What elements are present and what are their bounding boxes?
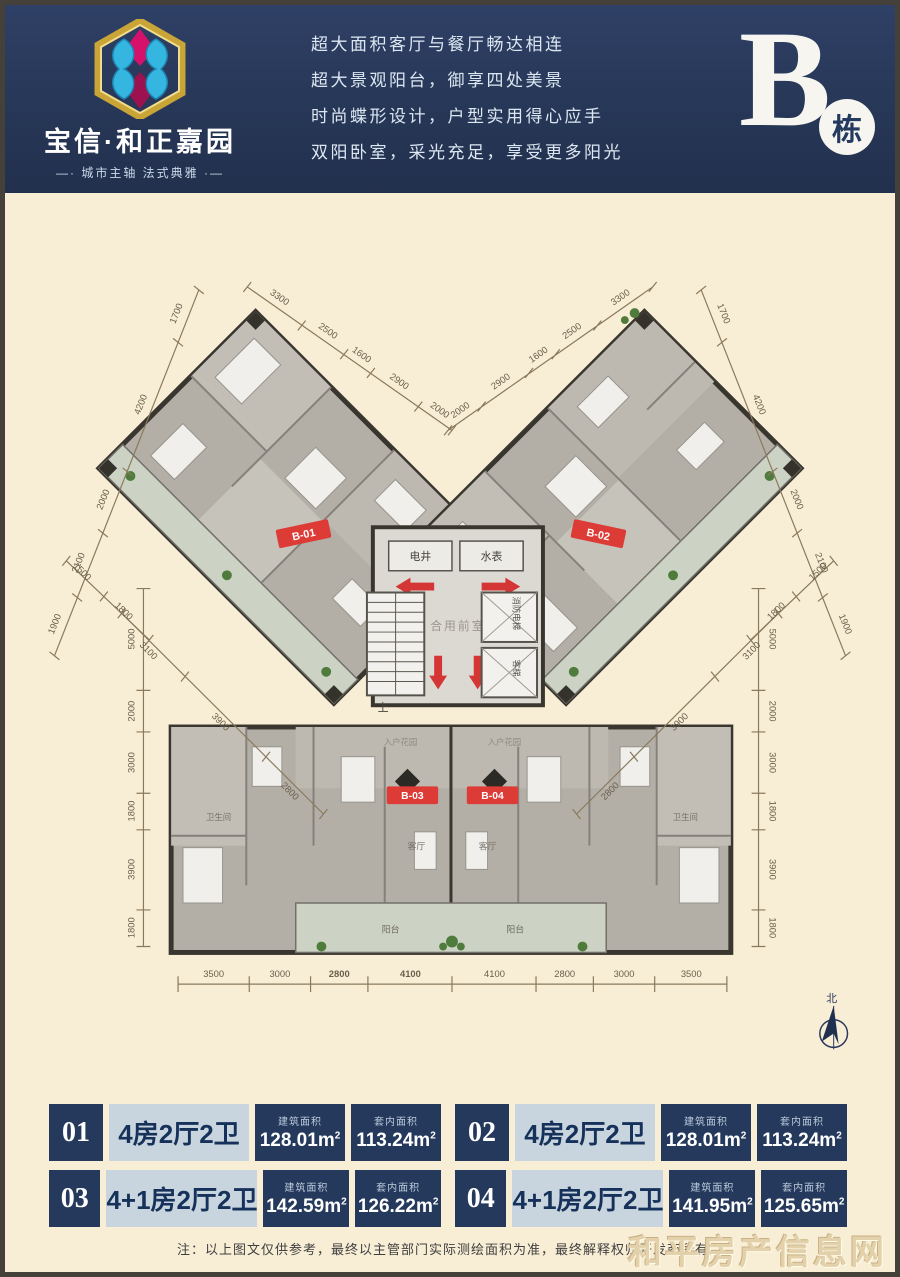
unit-column-right: 02 4房2厅2卫 建筑面积 128.01m2 套内面积 113.24m2 04… bbox=[455, 1104, 847, 1227]
svg-text:1700: 1700 bbox=[715, 302, 733, 325]
building-letter: B bbox=[739, 7, 831, 152]
svg-text:3900: 3900 bbox=[126, 859, 137, 880]
logo-wing-right bbox=[146, 39, 167, 99]
shared-lobby-label: 合用前室 bbox=[430, 619, 485, 633]
living-room-label: 客厅 bbox=[479, 841, 497, 852]
lower-block: 入户花园 入户花园 客厅 客厅 阳台 阳台 卫生间 卫生间 bbox=[171, 727, 731, 952]
built-area-cell: 建筑面积 128.01m2 bbox=[661, 1104, 751, 1161]
brand-logo-icon bbox=[90, 19, 190, 119]
svg-text:2000: 2000 bbox=[767, 701, 778, 722]
slogan-line: 时尚蝶形设计，户型实用得心应手 bbox=[311, 99, 690, 135]
svg-text:2800: 2800 bbox=[329, 968, 350, 979]
svg-text:1800: 1800 bbox=[765, 600, 788, 622]
svg-text:3000: 3000 bbox=[614, 968, 635, 979]
unit-type: 4+1房2厅2卫 bbox=[106, 1170, 257, 1227]
svg-text:4100: 4100 bbox=[400, 968, 421, 979]
brand-name: 宝信·和正嘉园 bbox=[5, 120, 275, 159]
svg-text:4100: 4100 bbox=[484, 968, 505, 979]
fire-elevator-label: 消防电梯 bbox=[511, 596, 521, 630]
svg-text:1800: 1800 bbox=[767, 917, 778, 938]
inner-area-cell: 套内面积 113.24m2 bbox=[757, 1104, 847, 1161]
entry-garden-label: 入户花园 bbox=[488, 737, 522, 747]
unit-info-tables: 01 4房2厅2卫 建筑面积 128.01m2 套内面积 113.24m2 03… bbox=[5, 1088, 895, 1227]
built-area-label: 建筑面积 bbox=[284, 1179, 328, 1194]
inner-area-value: 113.24m2 bbox=[762, 1130, 842, 1152]
unit-number: 02 bbox=[455, 1104, 509, 1161]
built-area-value: 142.59m2 bbox=[266, 1196, 347, 1218]
inner-area-cell: 套内面积 113.24m2 bbox=[351, 1104, 441, 1161]
svg-text:3500: 3500 bbox=[681, 968, 702, 979]
inner-area-value: 125.65m2 bbox=[764, 1196, 845, 1218]
svg-text:3000: 3000 bbox=[767, 752, 778, 773]
core: 电井 水表 合用前室 上 消防电梯 bbox=[367, 527, 543, 714]
slogan-list: 超大面积客厅与餐厅畅达相连 超大景观阳台，御享四处美景 时尚蝶形设计，户型实用得… bbox=[275, 27, 690, 171]
inner-area-label: 套内面积 bbox=[374, 1113, 418, 1128]
svg-text:1800: 1800 bbox=[113, 600, 136, 622]
unit-type: 4房2厅2卫 bbox=[515, 1104, 655, 1161]
svg-text:4200: 4200 bbox=[131, 393, 149, 416]
built-area-label: 建筑面积 bbox=[278, 1113, 322, 1128]
built-area-cell: 建筑面积 142.59m2 bbox=[263, 1170, 349, 1227]
svg-text:3100: 3100 bbox=[138, 639, 161, 662]
building-badge: 栋 bbox=[819, 99, 875, 155]
slogan-line: 超大面积客厅与餐厅畅达相连 bbox=[311, 27, 690, 63]
svg-text:1900: 1900 bbox=[45, 612, 63, 635]
unit-number: 01 bbox=[49, 1104, 103, 1161]
entry-garden-label: 入户花园 bbox=[384, 737, 418, 747]
brand-tagline: —· 城市主轴 法式典雅 ·— bbox=[5, 164, 275, 181]
stairs-up-label: 上 bbox=[378, 701, 389, 714]
footer: 01 4房2厅2卫 建筑面积 128.01m2 套内面积 113.24m2 03… bbox=[5, 1088, 895, 1272]
water-meter-label: 水表 bbox=[481, 549, 503, 563]
svg-text:3000: 3000 bbox=[269, 968, 290, 979]
inner-area-cell: 套内面积 126.22m2 bbox=[355, 1170, 441, 1227]
unit-row-04: 04 4+1房2厅2卫 建筑面积 141.95m2 套内面积 125.65m2 bbox=[455, 1170, 847, 1227]
bathroom-label: 卫生间 bbox=[673, 812, 698, 822]
unit-type: 4+1房2厅2卫 bbox=[512, 1170, 663, 1227]
compass-icon: 北 bbox=[820, 992, 848, 1049]
built-area-label: 建筑面积 bbox=[690, 1179, 734, 1194]
brand-block: 宝信·和正嘉园 —· 城市主轴 法式典雅 ·— bbox=[5, 17, 275, 181]
living-room-label: 客厅 bbox=[407, 841, 425, 852]
svg-text:3000: 3000 bbox=[126, 752, 137, 773]
inner-area-value: 126.22m2 bbox=[358, 1196, 439, 1218]
unit-type: 4房2厅2卫 bbox=[109, 1104, 249, 1161]
floor-plan-area: 电井 水表 合用前室 上 消防电梯 bbox=[5, 193, 895, 1088]
unit-tag-b03: B-03 bbox=[387, 786, 438, 804]
logo-wing-left bbox=[113, 39, 134, 99]
unit-number: 03 bbox=[49, 1170, 100, 1227]
floor-plan-svg: 电井 水表 合用前室 上 消防电梯 bbox=[5, 193, 895, 1078]
balcony-label: 阳台 bbox=[506, 924, 524, 935]
header: 宝信·和正嘉园 —· 城市主轴 法式典雅 ·— 超大面积客厅与餐厅畅达相连 超大… bbox=[5, 5, 895, 193]
inner-area-label: 套内面积 bbox=[376, 1179, 420, 1194]
built-area-label: 建筑面积 bbox=[684, 1113, 728, 1128]
unit-number: 04 bbox=[455, 1170, 506, 1227]
svg-text:2000: 2000 bbox=[126, 701, 137, 722]
svg-text:3900: 3900 bbox=[767, 859, 778, 880]
building-block: B 栋 bbox=[690, 5, 895, 193]
built-area-value: 128.01m2 bbox=[666, 1130, 747, 1152]
svg-text:1800: 1800 bbox=[126, 917, 137, 938]
svg-text:2000: 2000 bbox=[788, 488, 806, 511]
unit-row-02: 02 4房2厅2卫 建筑面积 128.01m2 套内面积 113.24m2 bbox=[455, 1104, 847, 1161]
svg-text:1900: 1900 bbox=[837, 612, 855, 635]
inner-area-value: 113.24m2 bbox=[356, 1130, 436, 1152]
svg-text:3500: 3500 bbox=[203, 968, 224, 979]
compass-north-label: 北 bbox=[826, 992, 837, 1005]
bathroom-label: 卫生间 bbox=[206, 812, 231, 822]
electric-shaft-label: 电井 bbox=[409, 549, 431, 563]
built-area-value: 128.01m2 bbox=[260, 1130, 341, 1152]
unit-row-03: 03 4+1房2厅2卫 建筑面积 142.59m2 套内面积 126.22m2 bbox=[49, 1170, 441, 1227]
svg-text:1800: 1800 bbox=[767, 801, 778, 822]
svg-text:B-04: B-04 bbox=[481, 791, 504, 802]
inner-area-cell: 套内面积 125.65m2 bbox=[761, 1170, 847, 1227]
built-area-cell: 建筑面积 128.01m2 bbox=[255, 1104, 345, 1161]
unit-column-left: 01 4房2厅2卫 建筑面积 128.01m2 套内面积 113.24m2 03… bbox=[49, 1104, 441, 1227]
watermark: 和平房产信息网 bbox=[628, 1225, 887, 1274]
built-area-value: 141.95m2 bbox=[672, 1196, 753, 1218]
unit-tag-b04: B-04 bbox=[467, 786, 518, 804]
svg-text:B-03: B-03 bbox=[401, 791, 424, 802]
inner-area-label: 套内面积 bbox=[782, 1179, 826, 1194]
slogan-line: 超大景观阳台，御享四处美景 bbox=[311, 63, 690, 99]
svg-text:2800: 2800 bbox=[554, 968, 575, 979]
stairs: 上 bbox=[367, 593, 424, 715]
poster-page: 宝信·和正嘉园 —· 城市主轴 法式典雅 ·— 超大面积客厅与餐厅畅达相连 超大… bbox=[0, 0, 900, 1277]
svg-text:1700: 1700 bbox=[167, 302, 185, 325]
svg-text:2000: 2000 bbox=[94, 488, 112, 511]
built-area-cell: 建筑面积 141.95m2 bbox=[669, 1170, 755, 1227]
inner-area-label: 套内面积 bbox=[780, 1113, 824, 1128]
svg-text:5000: 5000 bbox=[126, 629, 137, 650]
slogan-line: 双阳卧室，采光充足，享受更多阳光 bbox=[311, 135, 690, 171]
svg-text:4200: 4200 bbox=[751, 393, 769, 416]
svg-text:1800: 1800 bbox=[126, 801, 137, 822]
elevator-label: 客梯 bbox=[511, 660, 521, 677]
balcony-label: 阳台 bbox=[382, 924, 400, 935]
svg-text:5000: 5000 bbox=[767, 629, 778, 650]
unit-row-01: 01 4房2厅2卫 建筑面积 128.01m2 套内面积 113.24m2 bbox=[49, 1104, 441, 1161]
